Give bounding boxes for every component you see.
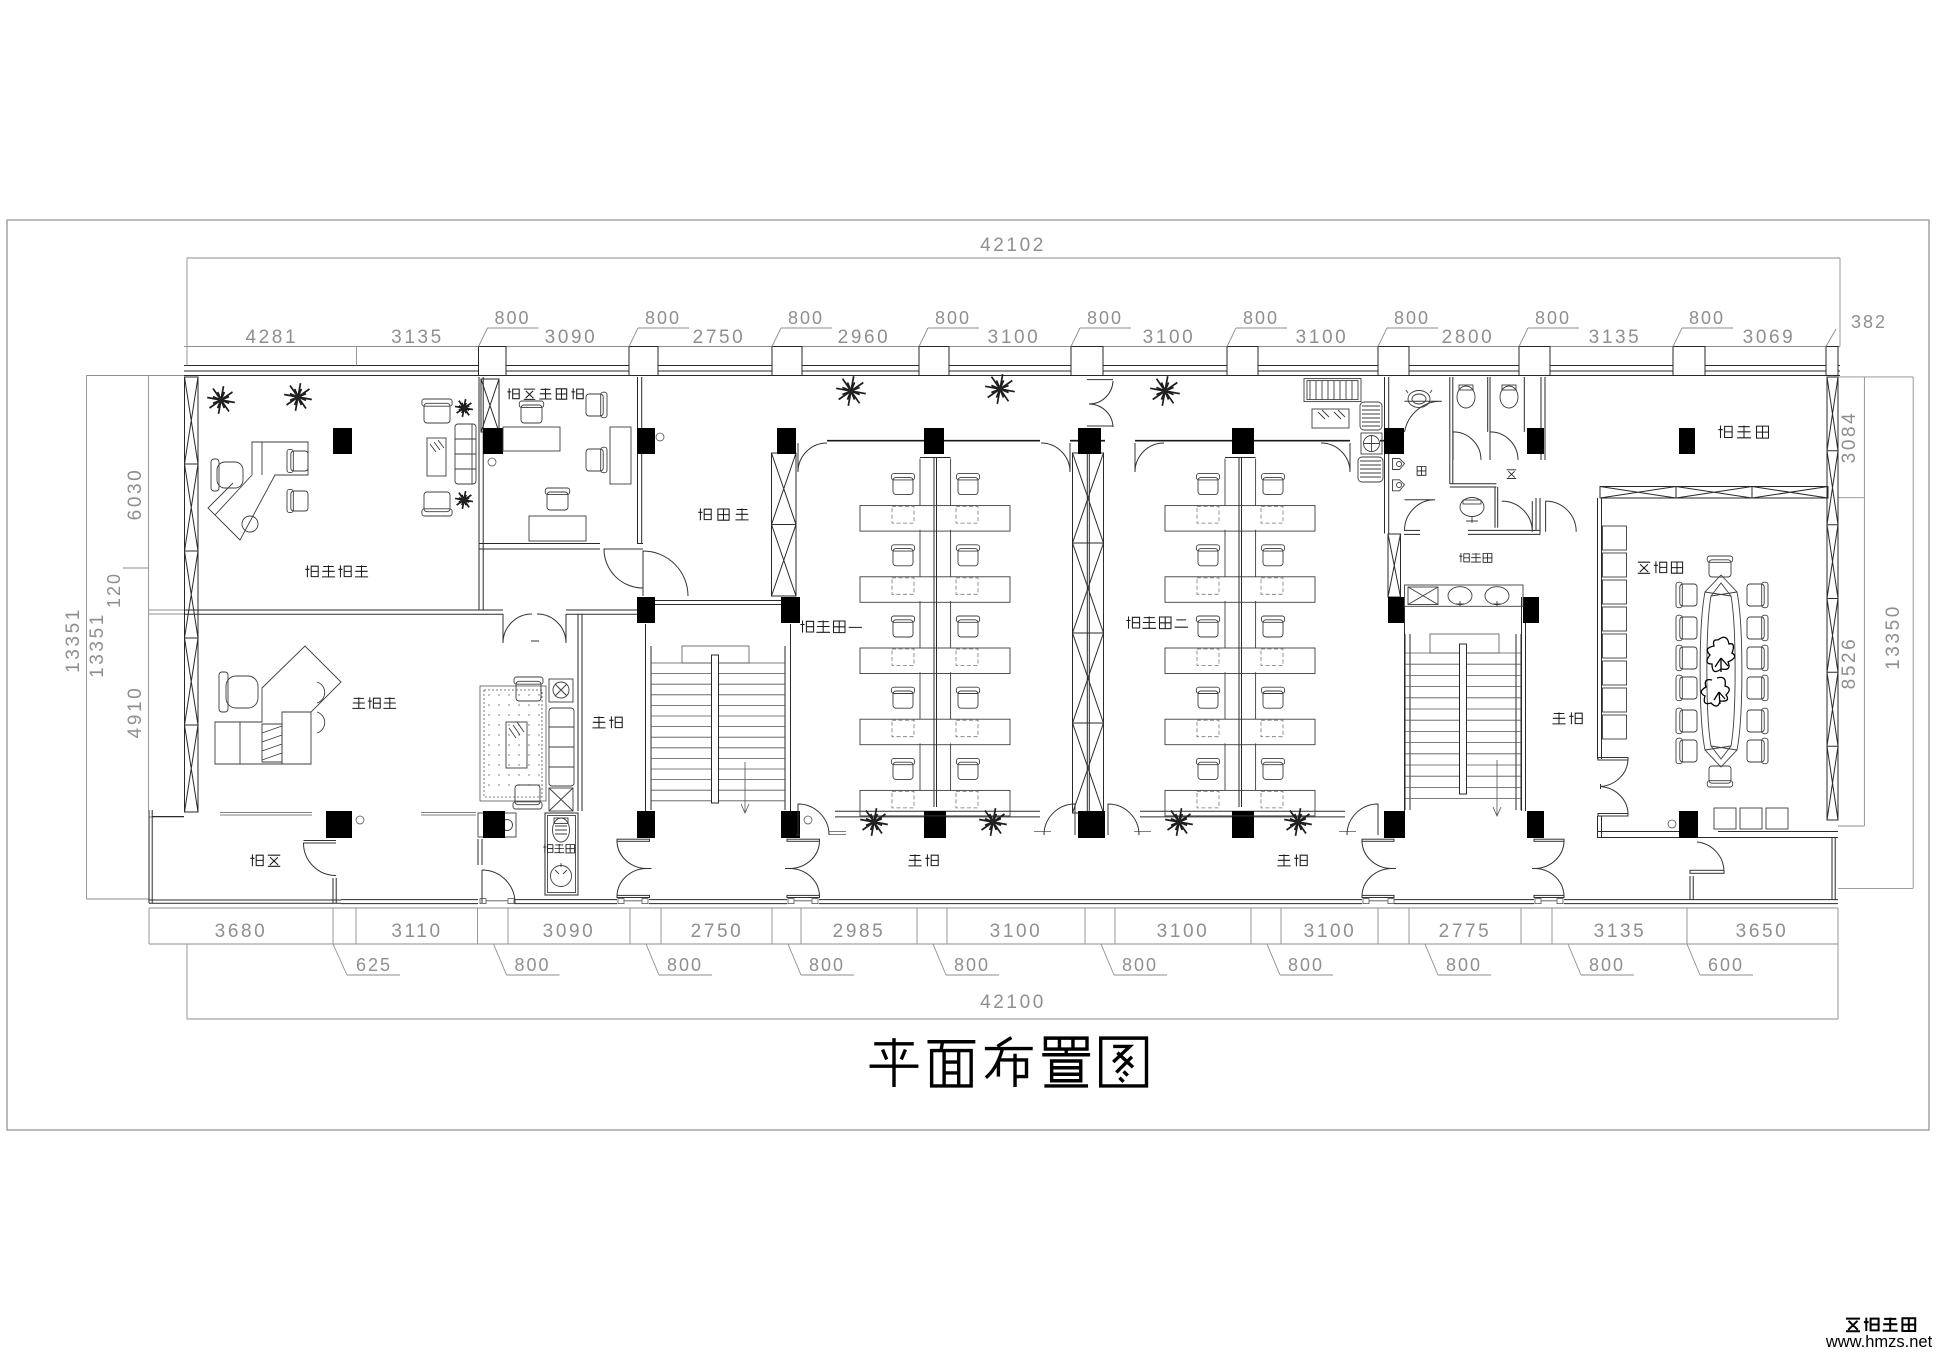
svg-text:600: 600	[1708, 955, 1744, 975]
svg-text:800: 800	[645, 308, 681, 328]
svg-text:3135: 3135	[1594, 921, 1647, 942]
svg-text:3090: 3090	[543, 921, 596, 942]
svg-text:3069: 3069	[1743, 327, 1796, 348]
svg-text:3135: 3135	[1589, 327, 1642, 348]
svg-text:2800: 2800	[1442, 327, 1495, 348]
svg-text:3110: 3110	[391, 921, 442, 942]
svg-text:3680: 3680	[215, 921, 268, 942]
svg-text:800: 800	[935, 308, 971, 328]
svg-text:800: 800	[1589, 955, 1625, 975]
svg-text:800: 800	[954, 955, 990, 975]
svg-text:3650: 3650	[1736, 921, 1789, 942]
svg-text:625: 625	[356, 955, 392, 975]
svg-text:6030: 6030	[125, 468, 146, 521]
svg-text:13350: 13350	[1883, 604, 1904, 670]
svg-text:3090: 3090	[545, 327, 598, 348]
svg-text:2960: 2960	[838, 327, 891, 348]
svg-text:800: 800	[1122, 955, 1158, 975]
svg-text:3084: 3084	[1839, 411, 1860, 464]
svg-text:42100: 42100	[980, 992, 1046, 1013]
svg-text:800: 800	[1288, 955, 1324, 975]
svg-text:2750: 2750	[693, 327, 746, 348]
svg-text:13351: 13351	[87, 612, 108, 678]
svg-text:800: 800	[514, 955, 550, 975]
svg-text:120: 120	[104, 572, 124, 608]
svg-text:800: 800	[1535, 308, 1571, 328]
svg-text:800: 800	[667, 955, 703, 975]
svg-text:42102: 42102	[980, 235, 1046, 256]
svg-text:800: 800	[1087, 308, 1123, 328]
svg-text:800: 800	[1689, 308, 1725, 328]
svg-text:800: 800	[1243, 308, 1279, 328]
svg-text:4910: 4910	[125, 686, 146, 739]
svg-text:3100: 3100	[988, 327, 1041, 348]
svg-text:3100: 3100	[1143, 327, 1196, 348]
svg-text:2750: 2750	[691, 921, 744, 942]
svg-text:800: 800	[788, 308, 824, 328]
svg-text:2985: 2985	[833, 921, 886, 942]
svg-text:800: 800	[1446, 955, 1482, 975]
svg-text:2775: 2775	[1439, 921, 1492, 942]
svg-text:3100: 3100	[1304, 921, 1357, 942]
svg-text:www.hmzs.net: www.hmzs.net	[1825, 1333, 1933, 1351]
svg-text:8526: 8526	[1839, 637, 1860, 690]
svg-text:800: 800	[809, 955, 845, 975]
svg-text:3100: 3100	[1296, 327, 1349, 348]
svg-text:800: 800	[494, 308, 530, 328]
svg-text:3135: 3135	[391, 327, 444, 348]
svg-text:3100: 3100	[1157, 921, 1210, 942]
svg-text:4281: 4281	[245, 327, 298, 348]
svg-text:3100: 3100	[990, 921, 1043, 942]
svg-text:13351: 13351	[63, 607, 84, 673]
svg-text:382: 382	[1851, 312, 1887, 332]
svg-text:800: 800	[1394, 308, 1430, 328]
